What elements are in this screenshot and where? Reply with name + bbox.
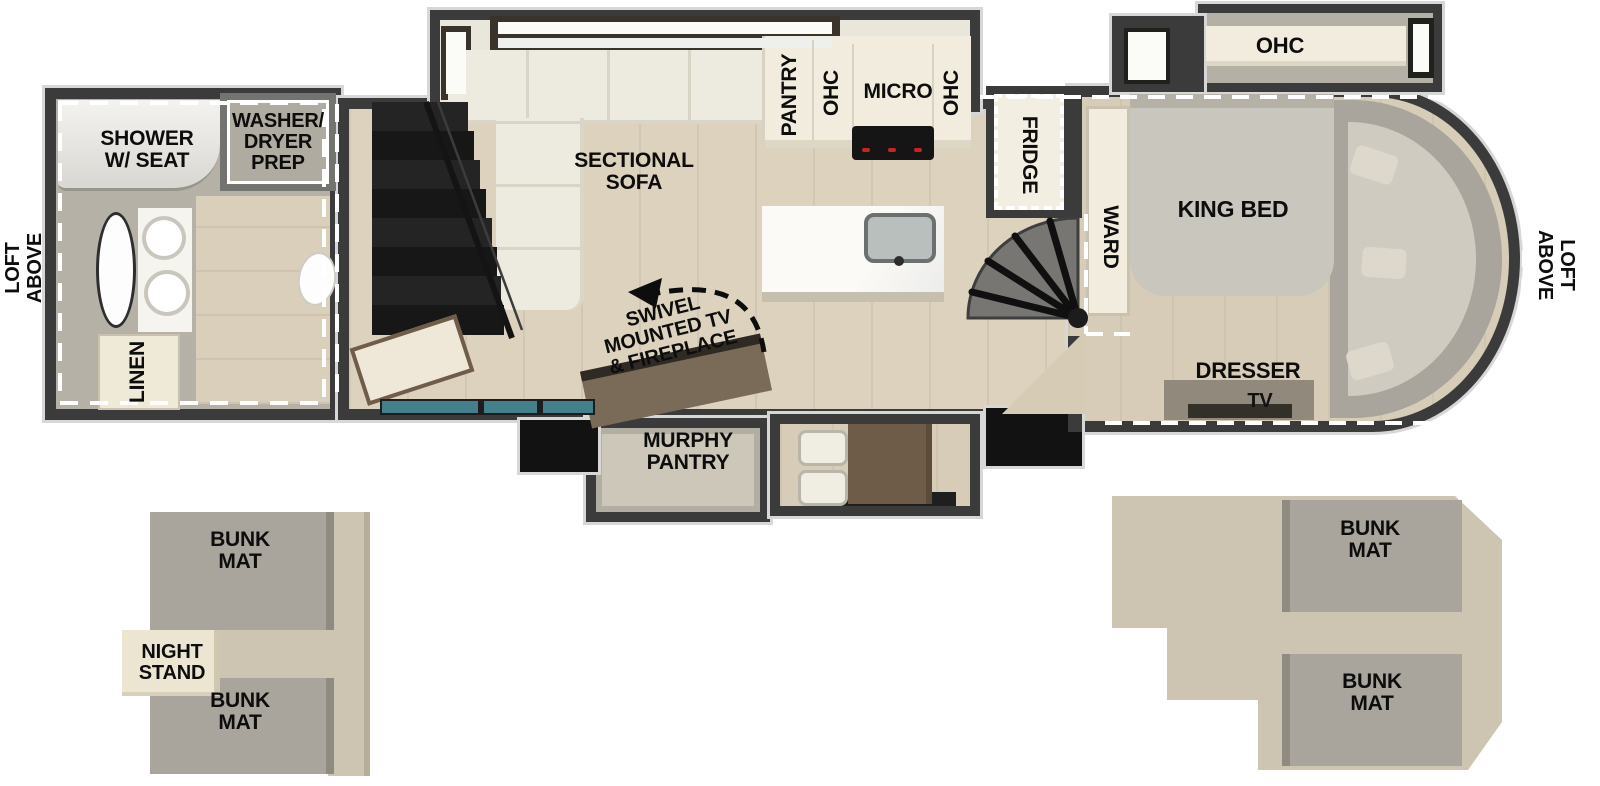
ohc-right-label: OHC — [940, 58, 964, 128]
murphy-pantry-label: MURPHY PANTRY — [628, 428, 748, 476]
sectional-sofa-chaise — [496, 118, 584, 310]
window-mullion — [537, 399, 543, 415]
stair-step — [372, 189, 486, 218]
window — [1124, 28, 1170, 84]
entry-step — [520, 420, 598, 472]
rv-floorplan: LOFT ABOVE SHOWER W/ SEAT WASHER/ DRYER … — [0, 0, 1600, 786]
pantry-label: PANTRY — [778, 40, 802, 150]
linen-label: LINEN — [126, 327, 150, 417]
dinette-table — [848, 424, 932, 504]
loft-left-platform — [328, 512, 370, 776]
dinette-chair — [798, 470, 848, 506]
cooktop — [852, 126, 934, 160]
fridge-label: FRIDGE — [1017, 100, 1041, 210]
loft-above-right-label: LOFT ABOVE — [1534, 210, 1578, 320]
micro-label: MICRO — [851, 80, 945, 104]
ohc-left-label: OHC — [820, 58, 844, 128]
bunk-mat-top-left-label: BUNK MAT — [180, 527, 300, 575]
night-stand-label: NIGHT STAND — [117, 639, 227, 687]
stair-step — [372, 102, 468, 131]
cabinet-divider — [812, 40, 814, 140]
stair-step — [372, 131, 474, 160]
stair-step — [372, 247, 497, 276]
king-bed — [1130, 94, 1334, 296]
sink-bowl — [144, 270, 190, 316]
cooktop-knob — [888, 148, 896, 152]
shower-label: SHOWER W/ SEAT — [67, 126, 227, 174]
window-glass — [446, 32, 466, 94]
sink-bowl — [142, 216, 186, 260]
bunk-mat-bottom-right-label: BUNK MAT — [1312, 669, 1432, 717]
king-bed-label: KING BED — [1163, 196, 1303, 222]
vanity-mirror — [96, 212, 136, 328]
window-mullion — [478, 399, 484, 415]
ohc-bedroom-label: OHC — [1240, 34, 1320, 58]
window-glass — [1413, 24, 1429, 72]
sectional-sofa-label: SECTIONAL SOFA — [559, 148, 709, 196]
loft-left-platform-middle — [220, 628, 330, 680]
bunk-mat-bottom-left-label: BUNK MAT — [180, 688, 300, 736]
ward-label: WARD — [1098, 190, 1122, 284]
cooktop-knob — [914, 148, 922, 152]
dresser-label: DRESSER — [1178, 358, 1318, 384]
cooktop-knob — [862, 148, 870, 152]
bunk-mat-top-right-label: BUNK MAT — [1310, 516, 1430, 564]
skylight-glass — [498, 22, 832, 34]
dinette-chair — [798, 430, 848, 466]
stair-step — [372, 276, 501, 305]
washer-dryer-label: WASHER/ DRYER PREP — [223, 106, 333, 178]
loft-above-left-label: LOFT ABOVE — [2, 213, 46, 323]
window — [380, 399, 595, 415]
stair-step — [372, 160, 480, 189]
pillow — [1361, 247, 1407, 280]
faucet — [894, 256, 904, 266]
tv-label: TV — [1230, 390, 1290, 412]
stair-step — [372, 218, 492, 247]
